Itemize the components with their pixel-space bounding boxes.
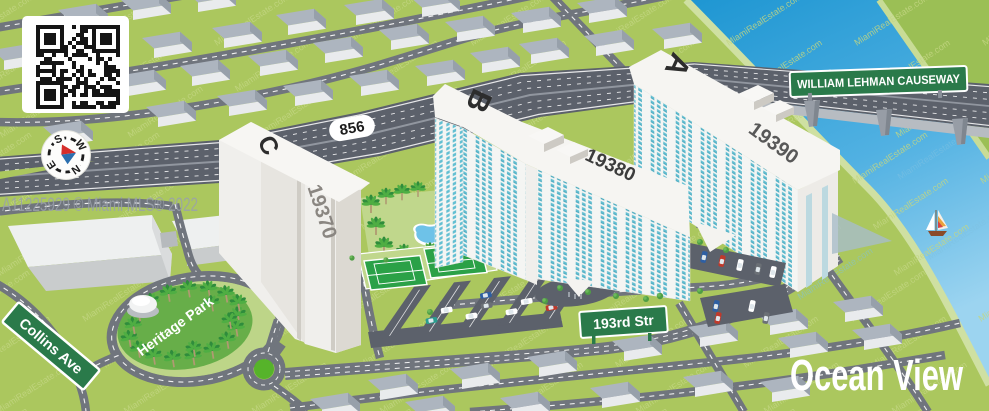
svg-text:Ocean View: Ocean View <box>790 351 964 400</box>
svg-text:A11225929 © Miami MLS® 2022: A11225929 © Miami MLS® 2022 <box>2 195 198 216</box>
